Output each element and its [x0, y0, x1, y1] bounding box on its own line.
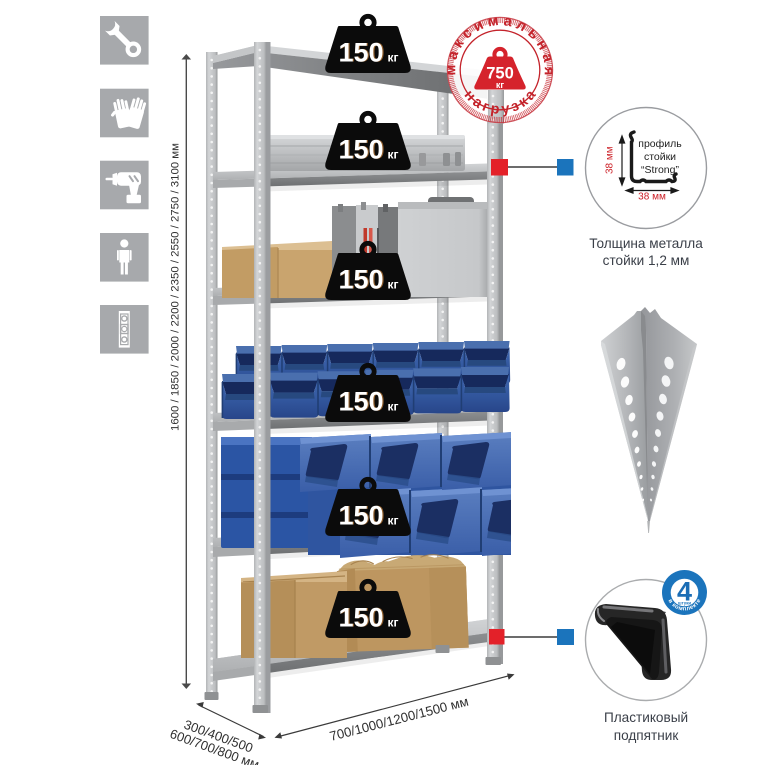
svg-text:“Strong”: “Strong”	[641, 164, 679, 176]
svg-text:стойки 1,2 мм: стойки 1,2 мм	[603, 253, 690, 268]
svg-text:Толщина металла: Толщина металла	[589, 236, 703, 251]
svg-text:Пластиковый: Пластиковый	[604, 710, 688, 725]
svg-text:кг: кг	[496, 80, 505, 90]
svg-text:38 мм: 38 мм	[605, 146, 616, 174]
svg-text:подпятник: подпятник	[614, 728, 680, 743]
svg-text:стойки: стойки	[644, 151, 676, 163]
svg-text:1600 / 1850 / 2000 / 2200 / 23: 1600 / 1850 / 2000 / 2200 / 2350 / 2550 …	[170, 143, 182, 431]
svg-text:я: я	[541, 67, 557, 76]
svg-text:38 мм: 38 мм	[638, 192, 666, 203]
svg-text:профиль: профиль	[638, 138, 682, 150]
svg-text:м: м	[443, 65, 459, 76]
svg-text:м: м	[487, 13, 500, 30]
